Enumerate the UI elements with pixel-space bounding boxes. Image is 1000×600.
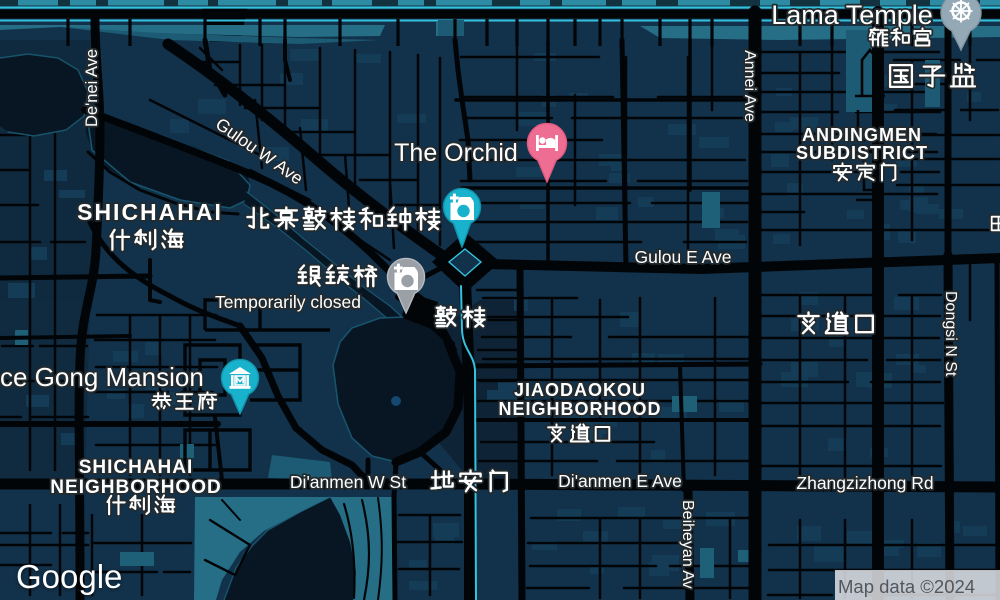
svg-text:Di'anmen W St: Di'anmen W St xyxy=(290,472,406,492)
svg-text:Lama Temple: Lama Temple xyxy=(771,0,933,30)
svg-text:Annei Ave: Annei Ave xyxy=(741,50,758,122)
svg-text:Di'anmen E Ave: Di'anmen E Ave xyxy=(558,471,682,491)
svg-text:SHICHAHAI: SHICHAHAI xyxy=(77,199,223,225)
svg-text:The Orchid: The Orchid xyxy=(394,139,518,167)
svg-text:Gulou E Ave: Gulou E Ave xyxy=(635,247,732,267)
svg-text:De'nei Ave: De'nei Ave xyxy=(83,49,101,127)
svg-text:Zhangzizhong Rd: Zhangzizhong Rd xyxy=(796,473,933,493)
svg-text:SHICHAHAI: SHICHAHAI xyxy=(79,457,194,478)
svg-text:NEIGHBORHOOD: NEIGHBORHOOD xyxy=(498,399,661,419)
svg-text:Dongsi N St: Dongsi N St xyxy=(942,291,959,377)
svg-text:Temporarily closed: Temporarily closed xyxy=(215,292,361,312)
svg-text:Beiheyan Av: Beiheyan Av xyxy=(679,500,696,589)
svg-text:ce Gong Mansion: ce Gong Mansion xyxy=(0,362,204,392)
svg-text:ANDINGMEN: ANDINGMEN xyxy=(802,125,922,145)
svg-text:Map data ©2024: Map data ©2024 xyxy=(838,576,975,597)
svg-text:JIAODAOKOU: JIAODAOKOU xyxy=(514,380,646,400)
svg-text:SUBDISTRICT: SUBDISTRICT xyxy=(796,143,928,163)
svg-text:Google: Google xyxy=(16,558,122,595)
